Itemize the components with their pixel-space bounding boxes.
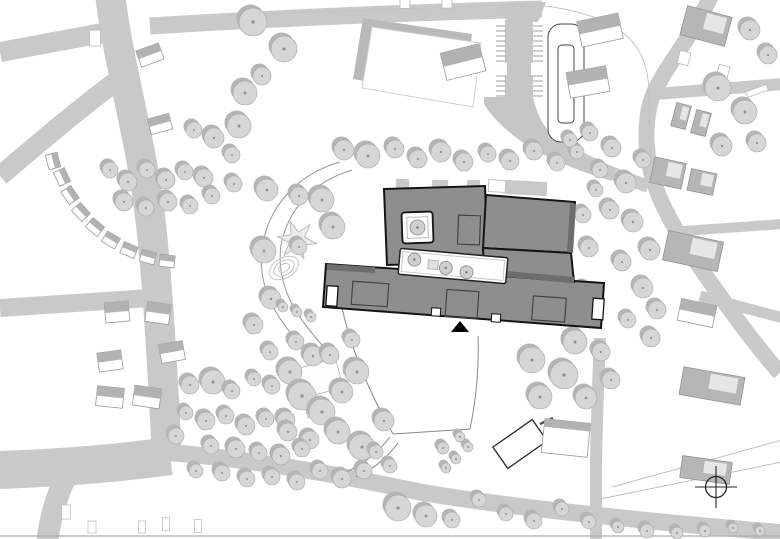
tree-trunk xyxy=(582,214,584,216)
tree-trunk xyxy=(203,177,205,179)
tree xyxy=(269,33,298,63)
tree-trunk xyxy=(533,520,535,522)
facade-notch xyxy=(491,314,501,323)
tree-trunk xyxy=(167,201,169,203)
tree-trunk xyxy=(610,379,612,381)
tree xyxy=(180,195,199,215)
tree xyxy=(199,367,226,395)
neighbor-building-roof-light xyxy=(666,162,683,179)
tree-trunk xyxy=(574,341,577,344)
terrace-house xyxy=(71,202,90,221)
tree-trunk xyxy=(767,54,769,56)
tree-trunk xyxy=(759,530,761,532)
tree xyxy=(621,209,644,233)
tree xyxy=(746,131,767,153)
tree-trunk xyxy=(609,209,611,211)
tree-trunk xyxy=(312,355,314,357)
tree xyxy=(590,159,609,179)
tree-trunk xyxy=(588,521,590,523)
tree-trunk xyxy=(321,199,324,202)
tree-trunk xyxy=(445,467,447,469)
tree-trunk xyxy=(295,341,297,343)
tree xyxy=(260,341,279,361)
tree xyxy=(354,141,381,169)
garden-shed xyxy=(139,521,146,533)
tree xyxy=(372,408,395,432)
facade-notch-body xyxy=(491,314,501,323)
tree-trunk xyxy=(467,446,469,448)
tree-trunk xyxy=(704,530,706,532)
house xyxy=(159,341,186,364)
tree-trunk xyxy=(351,339,353,341)
tree xyxy=(384,137,405,159)
tree-trunk xyxy=(244,92,247,95)
road xyxy=(596,338,600,539)
garden-shed xyxy=(88,521,96,533)
tree-trunk xyxy=(505,513,507,515)
tree-trunk xyxy=(589,132,591,134)
school-courtyard xyxy=(401,211,433,243)
tree-trunk xyxy=(732,527,734,529)
neighbor-building xyxy=(687,169,717,196)
tree-trunk xyxy=(425,515,428,518)
tree-trunk xyxy=(266,189,269,192)
parcel-line xyxy=(470,336,478,429)
tree-trunk xyxy=(263,250,266,253)
tree xyxy=(435,439,450,455)
tree xyxy=(225,111,252,139)
outline-structure-body xyxy=(400,0,410,9)
tree-trunk xyxy=(261,75,263,77)
tree-trunk xyxy=(193,129,195,131)
tree-trunk xyxy=(210,445,212,447)
garden-shed xyxy=(62,505,71,519)
tree-trunk xyxy=(329,354,331,356)
tree xyxy=(290,304,303,318)
house-roof xyxy=(104,301,129,313)
house xyxy=(566,66,610,99)
school-block xyxy=(483,195,575,253)
tree-trunk xyxy=(442,447,444,449)
tree-trunk xyxy=(455,458,457,460)
tree-trunk xyxy=(253,378,255,380)
facade-notch-body xyxy=(431,308,441,317)
tree-trunk xyxy=(145,207,147,209)
tree xyxy=(251,64,272,86)
outline-structure xyxy=(400,0,410,9)
tree-trunk xyxy=(301,448,303,450)
tree xyxy=(548,358,579,390)
tree xyxy=(222,380,241,400)
tree-trunk xyxy=(600,351,602,353)
outline-structure xyxy=(442,0,452,8)
tree-trunk xyxy=(231,154,233,156)
tree xyxy=(113,190,134,212)
house xyxy=(97,350,123,372)
terrace-house xyxy=(61,185,79,204)
tree-trunk xyxy=(185,412,187,414)
tree-trunk xyxy=(744,111,747,114)
tree-trunk xyxy=(650,337,652,339)
house xyxy=(96,386,125,409)
tree xyxy=(587,180,604,198)
house xyxy=(104,301,130,323)
terrace-house xyxy=(101,231,120,249)
tree xyxy=(231,78,258,106)
tree-trunk xyxy=(625,182,627,184)
neighbor-building-roof-light xyxy=(700,173,714,187)
tree-trunk xyxy=(287,431,289,433)
tree-trunk xyxy=(569,139,571,141)
tree xyxy=(731,97,758,125)
tree-trunk xyxy=(127,181,129,183)
tree-trunk xyxy=(296,481,298,483)
tree xyxy=(599,198,620,220)
tree-trunk xyxy=(721,145,723,147)
parking-gap xyxy=(531,63,538,75)
tree xyxy=(757,43,778,65)
tree xyxy=(738,17,761,41)
neighbor-building xyxy=(671,102,692,129)
tree xyxy=(195,409,216,431)
tree xyxy=(413,502,438,528)
tree xyxy=(304,309,317,323)
tree-trunk xyxy=(509,160,511,162)
terrain-contour xyxy=(271,256,297,279)
tree-trunk xyxy=(211,195,213,197)
neighbor-building xyxy=(662,231,723,272)
tree-trunk xyxy=(478,499,480,501)
tree-trunk xyxy=(265,418,267,420)
tree-trunk xyxy=(271,385,273,387)
house xyxy=(577,13,623,47)
tree-trunk xyxy=(320,410,323,413)
tree-trunk xyxy=(341,391,344,394)
tree-trunk xyxy=(298,246,300,248)
tree xyxy=(578,236,599,258)
tree xyxy=(250,236,277,264)
tree xyxy=(429,139,452,163)
tree xyxy=(286,331,305,351)
tree-trunk xyxy=(337,431,340,434)
tree-trunk xyxy=(298,195,300,197)
tree xyxy=(175,161,194,181)
parking-gap xyxy=(500,63,507,75)
tree xyxy=(332,137,355,161)
tree xyxy=(216,405,235,425)
tree-trunk xyxy=(195,470,197,472)
tree-trunk xyxy=(599,169,601,171)
road xyxy=(0,456,170,470)
outline-structure-body xyxy=(488,180,506,193)
tree xyxy=(449,451,462,465)
white-diagonal-building-body xyxy=(493,420,547,469)
school-building-layer xyxy=(323,179,604,328)
garden-shed-body xyxy=(163,518,170,531)
gray-roof-building xyxy=(541,419,590,458)
tree xyxy=(288,184,309,206)
neighbor-building xyxy=(691,109,712,136)
tree xyxy=(638,237,661,261)
tree-trunk xyxy=(300,394,303,397)
tree xyxy=(646,298,667,320)
garden-shed-body xyxy=(62,505,71,519)
tree-trunk xyxy=(246,478,248,480)
tree-trunk xyxy=(617,526,619,528)
tree-trunk xyxy=(238,125,241,128)
courtyard-box xyxy=(428,260,439,270)
terrace-house xyxy=(53,168,70,187)
outline-structure xyxy=(90,30,101,46)
tree-trunk xyxy=(253,324,255,326)
school-entrance xyxy=(592,298,604,320)
tree-trunk xyxy=(258,452,260,454)
garden-shed-body xyxy=(195,520,202,533)
tree xyxy=(442,509,461,529)
tree-trunk xyxy=(165,179,167,181)
tree xyxy=(262,375,281,395)
tree-trunk xyxy=(530,358,533,361)
tree xyxy=(640,326,661,348)
tree-trunk xyxy=(389,465,391,467)
tree-trunk xyxy=(396,506,399,509)
facade-notch xyxy=(431,308,441,317)
tree xyxy=(580,122,599,142)
tree-trunk xyxy=(440,151,442,153)
outline-structure-body xyxy=(442,0,452,8)
road-area xyxy=(505,20,533,98)
tree-trunk xyxy=(676,532,678,534)
tree-trunk xyxy=(282,306,284,308)
tree-trunk xyxy=(383,420,385,422)
tree-trunk xyxy=(221,472,223,474)
existing-footprint-body xyxy=(505,180,548,196)
tree-trunk xyxy=(189,205,191,207)
tree xyxy=(324,417,351,445)
tree-trunk xyxy=(585,397,588,400)
tree-trunk xyxy=(231,390,233,392)
tree xyxy=(193,166,214,188)
tree-trunk xyxy=(642,159,644,161)
tree xyxy=(224,173,243,193)
tree xyxy=(618,309,637,329)
tree-trunk xyxy=(356,371,359,374)
tree-trunk xyxy=(632,221,634,223)
tree-trunk xyxy=(576,151,578,153)
tree xyxy=(342,329,361,349)
tree-trunk xyxy=(627,319,629,321)
tree-trunk xyxy=(459,436,461,438)
tree xyxy=(100,159,119,179)
white-diagonal-building xyxy=(493,420,547,469)
tree-trunk xyxy=(394,148,396,150)
tree-trunk xyxy=(341,478,343,480)
tree xyxy=(245,369,262,387)
tree xyxy=(517,344,546,374)
garden-shed-body xyxy=(139,521,146,533)
school-entrance xyxy=(326,286,338,307)
tree-trunk xyxy=(646,530,648,532)
house xyxy=(132,385,162,409)
garden-shed xyxy=(163,518,170,531)
tree-trunk xyxy=(296,311,298,313)
tree-trunk xyxy=(109,169,111,171)
tree-trunk xyxy=(595,189,597,191)
tree xyxy=(237,468,256,488)
tree-trunk xyxy=(539,396,542,399)
tree xyxy=(276,299,289,313)
site-plan xyxy=(0,0,780,539)
tree xyxy=(614,170,637,194)
house xyxy=(147,113,172,134)
tree-trunk xyxy=(561,508,563,510)
tree-trunk xyxy=(749,29,751,31)
tree-trunk xyxy=(309,439,311,441)
tree xyxy=(254,176,279,202)
tree xyxy=(222,144,241,164)
tree xyxy=(439,460,452,474)
tree-trunk xyxy=(562,373,565,376)
tree-trunk xyxy=(363,470,365,472)
road xyxy=(670,224,780,232)
tree-trunk xyxy=(270,298,272,300)
terrace-house xyxy=(120,242,138,259)
tree xyxy=(590,340,611,362)
existing-footprint xyxy=(505,180,548,196)
tree-trunk xyxy=(233,183,235,185)
tree xyxy=(710,133,733,157)
tree xyxy=(308,185,335,213)
tree xyxy=(235,414,256,436)
tree xyxy=(256,408,275,428)
school-entrance-body xyxy=(326,286,338,307)
tree-trunk xyxy=(367,155,370,158)
tree xyxy=(526,382,553,410)
tree-trunk xyxy=(251,20,254,23)
tree-trunk xyxy=(280,455,282,457)
tree-trunk xyxy=(212,381,215,384)
tree-trunk xyxy=(533,150,535,152)
tree-trunk xyxy=(235,448,237,450)
tree xyxy=(179,373,200,395)
tree xyxy=(319,212,346,240)
tree-trunk xyxy=(588,247,590,249)
tree xyxy=(611,250,632,272)
tree-trunk xyxy=(213,137,215,139)
neighbor-building xyxy=(679,367,745,405)
tree-trunk xyxy=(269,351,271,353)
school-entrance-body xyxy=(592,298,604,320)
tree-trunk xyxy=(175,435,177,437)
tree xyxy=(202,125,225,149)
tree-trunk xyxy=(649,249,651,251)
tree-trunk xyxy=(343,149,345,151)
tree-trunk xyxy=(417,158,419,160)
tree-trunk xyxy=(556,162,558,164)
tree-trunk xyxy=(245,425,247,427)
tree-trunk xyxy=(205,420,207,422)
tree xyxy=(499,149,520,171)
tree-trunk xyxy=(642,287,644,289)
tree-trunk xyxy=(621,261,623,263)
outline-structure xyxy=(488,180,506,193)
terrace-house xyxy=(85,218,104,237)
road xyxy=(150,9,542,26)
tree-trunk xyxy=(319,470,321,472)
tree xyxy=(561,327,588,355)
tree xyxy=(478,143,497,163)
tree-trunk xyxy=(332,226,335,229)
terrace-house xyxy=(45,152,60,170)
outline-structure-body xyxy=(90,30,101,46)
tree-trunk xyxy=(375,451,377,453)
entrance-triangle-marker xyxy=(451,321,469,332)
tree-trunk xyxy=(123,201,125,203)
tree-trunk xyxy=(189,384,191,386)
tree-trunk xyxy=(271,476,273,478)
tree-trunk xyxy=(289,371,292,374)
tree-trunk xyxy=(756,142,758,144)
tree-trunk xyxy=(656,309,658,311)
tree-trunk xyxy=(451,519,453,521)
tree xyxy=(237,5,268,37)
tree-trunk xyxy=(184,171,186,173)
tree-trunk xyxy=(310,316,312,318)
tree-trunk xyxy=(225,415,227,417)
tree-trunk xyxy=(282,47,285,50)
tree xyxy=(407,147,428,169)
garden-shed-body xyxy=(88,521,96,533)
tree xyxy=(631,275,654,299)
tree xyxy=(601,136,622,158)
garden-shed xyxy=(195,520,202,533)
tree xyxy=(453,429,466,443)
tree xyxy=(453,150,474,172)
terrace-house xyxy=(159,254,175,268)
tree-trunk xyxy=(360,445,363,448)
tree-trunk xyxy=(463,161,465,163)
tree xyxy=(381,456,398,474)
tree xyxy=(243,313,264,335)
tree xyxy=(343,357,370,385)
tree-trunk xyxy=(716,86,719,89)
tree xyxy=(202,185,221,205)
tree-trunk xyxy=(146,169,148,171)
tree-trunk xyxy=(487,153,489,155)
tree xyxy=(184,119,203,139)
house xyxy=(136,43,164,67)
tree-trunk xyxy=(611,147,613,149)
site-plan-svg xyxy=(0,0,780,539)
house xyxy=(145,301,172,324)
